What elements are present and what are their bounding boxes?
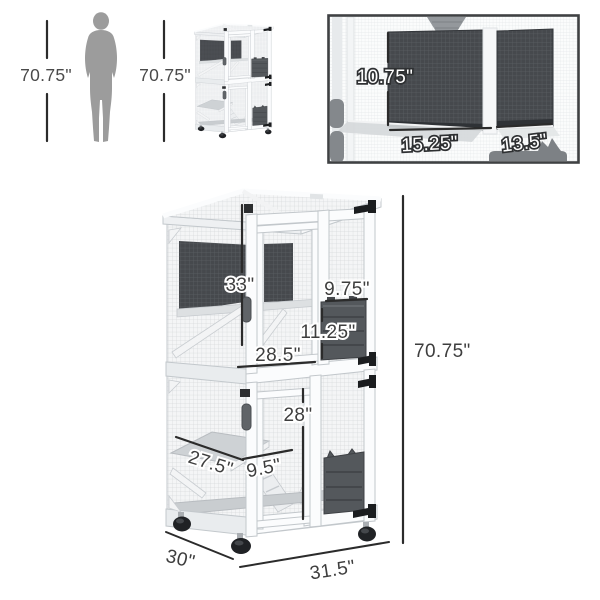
upper-interior-width-label: 28.5" bbox=[255, 345, 301, 366]
human-height-label: 70.75" bbox=[20, 65, 72, 85]
mini-cage-thumbnail bbox=[194, 24, 273, 138]
upper-door-height-label: 33" bbox=[225, 275, 254, 296]
cat-bed-width-label: 9.75" bbox=[324, 279, 370, 300]
cat-bed-height-label: 11.25" bbox=[300, 322, 355, 343]
small-mesh-hammock bbox=[497, 29, 553, 129]
overall-height-label: 70.75" bbox=[414, 341, 471, 362]
human-silhouette-icon bbox=[85, 12, 117, 142]
lower-door-height-label: 28" bbox=[283, 405, 312, 426]
overall-depth-label: 30" bbox=[164, 546, 197, 573]
product-dimension-diagram: 70.75" 70.75" bbox=[0, 0, 600, 600]
hammock-height-label: 10.75" bbox=[357, 67, 414, 88]
main-cage-illustration bbox=[163, 191, 381, 554]
diagram-canvas: 70.75" 70.75" bbox=[0, 0, 600, 600]
thumbnail-height-label: 70.75" bbox=[139, 65, 191, 85]
scale-comparison: 70.75" 70.75" bbox=[20, 12, 273, 142]
inset-detail-box: 10.75" 15.25" 13.5" bbox=[329, 16, 579, 164]
large-platform-width-label: 15.25" bbox=[401, 133, 459, 157]
overall-width-label: 31.5" bbox=[308, 557, 356, 585]
